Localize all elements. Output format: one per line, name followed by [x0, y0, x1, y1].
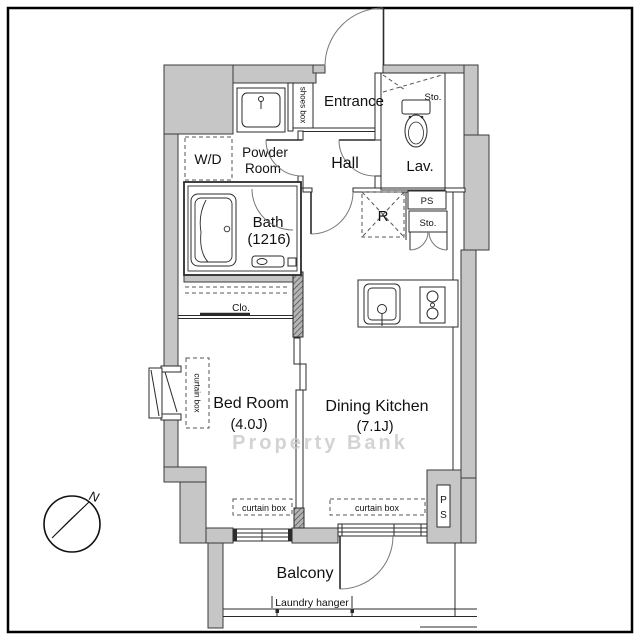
ps-shaft-label-s: S [440, 510, 447, 521]
bedroom-label-2: (4.0J) [230, 417, 267, 433]
bedroom-window-cap-right [288, 529, 292, 541]
bedroom-label-1: Bed Room [213, 395, 289, 412]
wall-right-upper [464, 65, 478, 140]
left-curtain-box-label: curtain box [193, 373, 202, 412]
lav-label: Lav. [406, 158, 433, 175]
shoes-box-label: shoes box [299, 87, 308, 123]
bath-label-2: (1216) [247, 231, 290, 248]
balcony-left-wall [208, 543, 223, 628]
wall-left-bottom [180, 482, 206, 543]
ps-label: PS [421, 196, 434, 207]
bedroom-curtain-box-label: curtain box [242, 503, 287, 513]
refrigerator-label: R [378, 208, 389, 225]
wall-top-left-of-door [313, 65, 325, 73]
left-window-cap-top [161, 366, 181, 372]
sto-label: Sto. [420, 218, 437, 229]
wall-right-block [464, 135, 489, 250]
wall-right-bottom [461, 478, 476, 543]
left-window-cap-bottom [161, 414, 181, 420]
page-background [0, 0, 640, 640]
dk-curtain-box-label: curtain box [355, 503, 400, 513]
bath-area: Bath (1216) [184, 182, 301, 275]
sliding-door-panel-1 [294, 338, 300, 364]
wall-top-oversink [233, 65, 316, 83]
partition-hatched-lower [294, 508, 304, 528]
dk-label-1: Dining Kitchen [325, 398, 428, 415]
powder-room-label-2: Room [245, 161, 281, 176]
powder-room-label-1: Powder [242, 145, 288, 160]
ps-shaft-label-p: P [440, 495, 447, 506]
partition-hatched-upper [293, 272, 303, 337]
toilet-button-left [409, 116, 412, 119]
bath-label-1: Bath [253, 214, 284, 231]
balcony-label: Balcony [277, 565, 334, 582]
sliding-door-panel-2 [300, 364, 306, 390]
entrance-label: Entrance [324, 93, 384, 110]
wall-powder-entrance-divider [288, 83, 293, 131]
stove [420, 287, 445, 323]
wall-right-lower [461, 250, 476, 478]
watermark: Property Bank [232, 432, 408, 454]
dk-window [338, 524, 427, 536]
wall-bottom-bedroom-left [206, 528, 233, 543]
wall-bottom-between-windows [292, 528, 338, 543]
bath-stool [288, 258, 296, 266]
kitchen-area [358, 280, 458, 327]
closet-label: Clo. [232, 303, 250, 314]
bedroom-window-cap-left [233, 529, 237, 541]
ps-shaft: P S [437, 485, 450, 527]
laundry-hanger-label: Laundry hanger [275, 597, 349, 609]
wall-left-step [164, 467, 206, 482]
toilet-tank [402, 100, 430, 114]
compass-circle [44, 496, 100, 552]
vanity-sink-basin [242, 93, 280, 127]
toilet-button-right [421, 116, 424, 119]
floor-plan-canvas: shoes box Entrance Sto. Lav. Hall W/D Po… [0, 0, 640, 640]
wall-lav-left-lower [375, 176, 381, 188]
wd-label: W/D [194, 151, 221, 167]
wall-topleft-block [164, 65, 233, 134]
wall-hall-dk-left [303, 188, 312, 192]
wall-powder-right-upper [298, 131, 303, 140]
hall-label: Hall [331, 155, 359, 172]
